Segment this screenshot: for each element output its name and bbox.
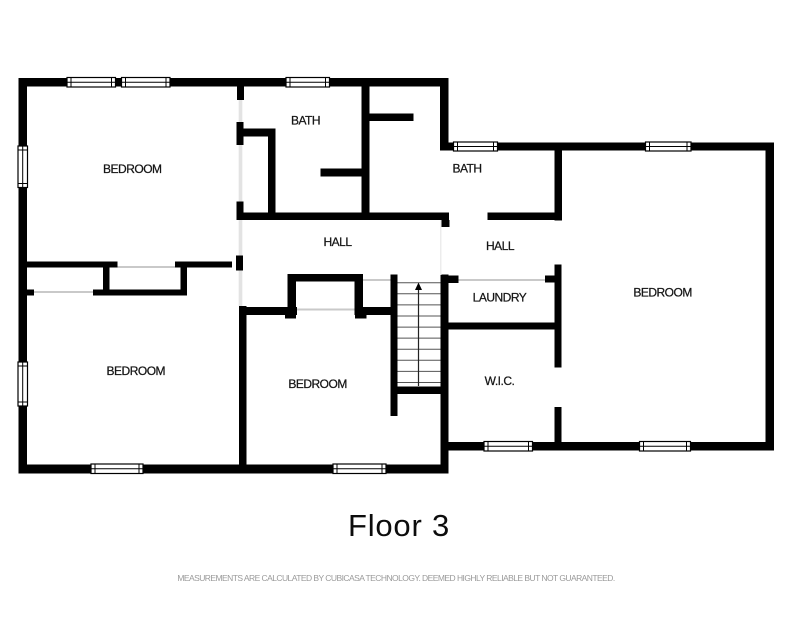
svg-text:Floor 3: Floor 3 bbox=[348, 508, 450, 543]
svg-text:LAUNDRY: LAUNDRY bbox=[473, 291, 527, 305]
svg-text:BEDROOM: BEDROOM bbox=[288, 377, 347, 391]
svg-text:BEDROOM: BEDROOM bbox=[103, 162, 162, 176]
svg-text:BATH: BATH bbox=[452, 162, 481, 176]
svg-text:BATH: BATH bbox=[291, 114, 320, 128]
svg-text:BEDROOM: BEDROOM bbox=[633, 286, 692, 300]
svg-text:W.I.C.: W.I.C. bbox=[485, 374, 515, 388]
svg-text:BEDROOM: BEDROOM bbox=[107, 364, 166, 378]
svg-text:MEASUREMENTS ARE CALCULATED BY: MEASUREMENTS ARE CALCULATED BY CUBICASA … bbox=[177, 573, 615, 583]
svg-text:HALL: HALL bbox=[486, 239, 515, 253]
svg-text:HALL: HALL bbox=[323, 235, 352, 249]
